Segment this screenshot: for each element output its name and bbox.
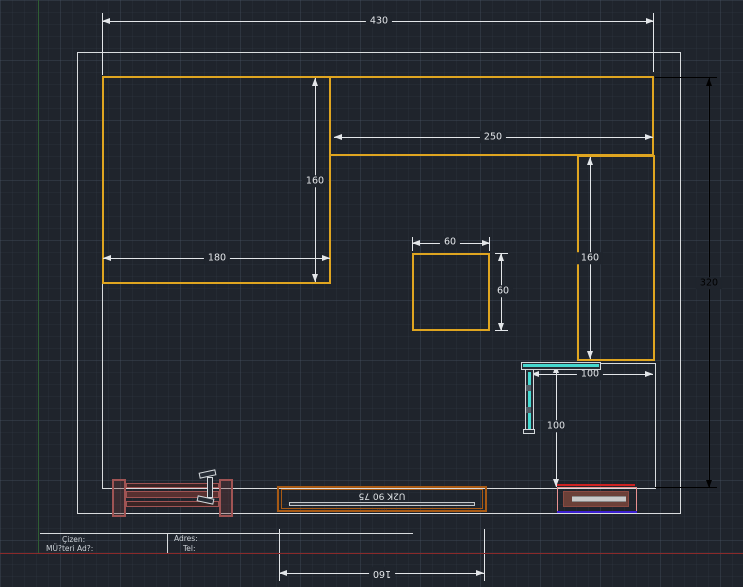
cad-canvas[interactable]: 430 250 160 180 60 60 160 320 100 100: [0, 0, 743, 587]
glass-partition-horizontal-pane: [523, 364, 599, 367]
dim-250-label: 250: [480, 131, 506, 143]
title-block-customer-label: MÜ?teri Ad?:: [46, 545, 93, 553]
partition-end-cap: [523, 429, 535, 434]
wall-outer-right: [680, 52, 681, 514]
dim-320-label: 320: [696, 277, 722, 289]
dim-60w-label: 60: [440, 236, 460, 248]
glass-partition-vertical-pane: [528, 372, 531, 430]
bench-rail-top: [126, 483, 219, 488]
title-block-separator: [167, 533, 168, 554]
counter-top-band: [329, 76, 654, 156]
dim-160b-label: 160: [369, 567, 395, 579]
bench-post-left: [112, 479, 126, 517]
dim-160-left-label: 160: [302, 175, 328, 187]
window-glass-blue-line: [557, 511, 637, 513]
wall-outer-left: [77, 52, 78, 514]
dim-430-label: 430: [366, 15, 392, 27]
island-square: [412, 253, 490, 331]
axis-green-line: [38, 0, 39, 554]
dim-60h-label: 60: [493, 285, 513, 297]
title-block-phone-label: Tel:: [183, 545, 196, 553]
title-block-top-line: [40, 533, 413, 534]
bench-post-right: [219, 479, 233, 517]
wall-inner-left: [102, 284, 103, 489]
dim-180-label: 180: [204, 252, 230, 264]
title-block-red-line: [0, 553, 743, 554]
radiator-core: [572, 496, 626, 502]
partition-knob-bottom: [526, 407, 531, 413]
dim-100h-label: 100: [543, 420, 569, 432]
window-sill-red-line: [557, 484, 635, 486]
dim-160b-ext-right: [484, 529, 485, 581]
title-block-drawer-label: Çizen:: [62, 536, 85, 544]
cabinet-u2k-label: U2K 90 75: [355, 490, 410, 501]
wall-inner-right: [655, 363, 656, 489]
dim-160-right-label: 160: [577, 252, 603, 264]
partition-knob-top: [526, 385, 531, 391]
wall-outer-top: [77, 52, 681, 53]
title-block-address-label: Adres:: [174, 535, 198, 543]
cabinet-u2k-marks: ·····: [372, 505, 391, 514]
faucet-icon-body: [207, 477, 213, 498]
